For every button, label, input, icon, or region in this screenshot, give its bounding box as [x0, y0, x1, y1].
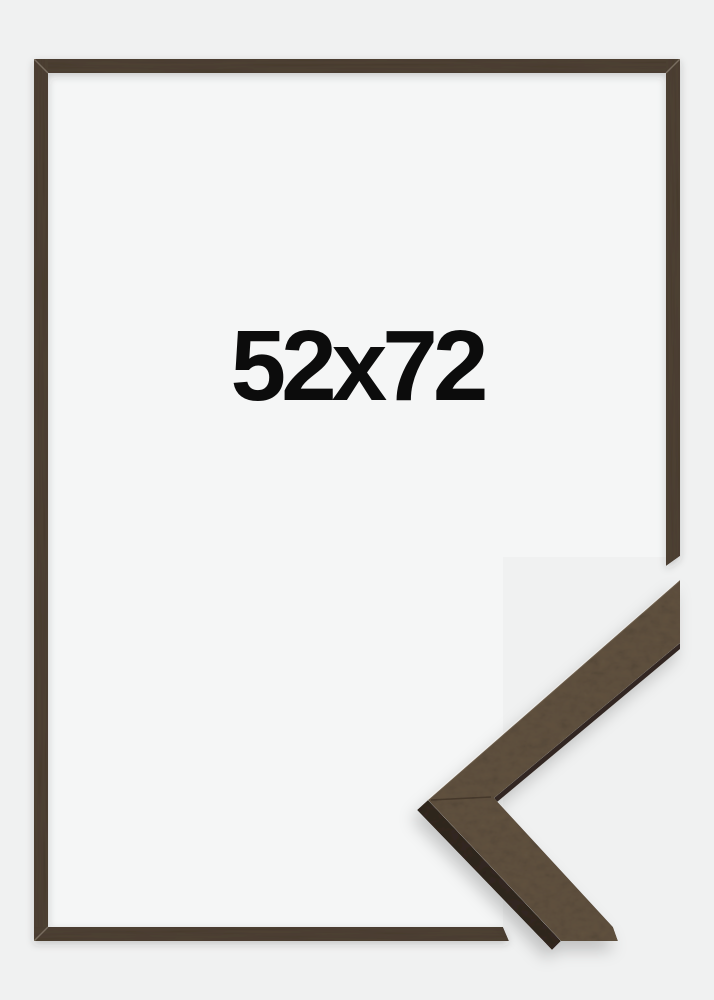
frame-border-left — [34, 59, 48, 941]
frame-border-right — [666, 59, 680, 566]
frame-product-graphic: 52x72 — [0, 0, 714, 1000]
frame-border-top — [34, 59, 680, 73]
product-image: 52x72 — [0, 0, 714, 1000]
frame-border-bottom — [34, 927, 509, 941]
size-label: 52x72 — [230, 310, 484, 422]
